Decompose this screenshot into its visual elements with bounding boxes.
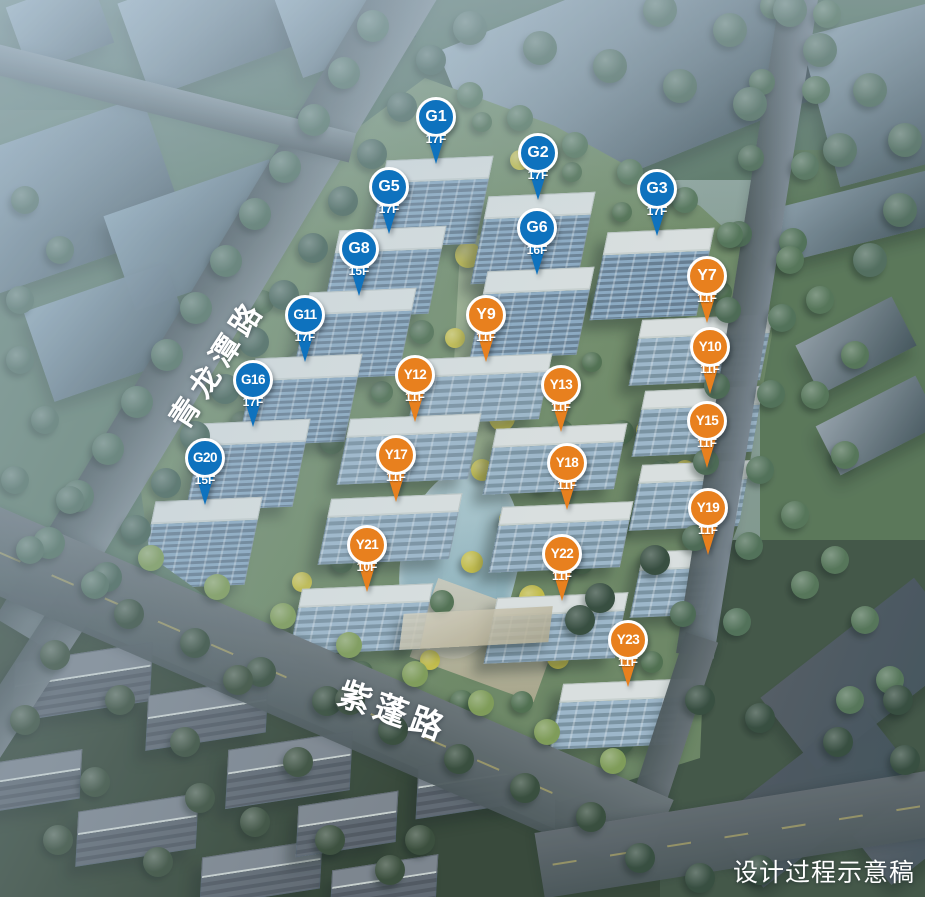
building-pin-y15[interactable]: Y1511F: [684, 401, 730, 468]
pin-building-id: G6: [526, 220, 547, 236]
pin-bubble: G11: [285, 295, 325, 335]
pin-floor-count: 11F: [373, 471, 419, 483]
building-pin-y9[interactable]: Y911F: [463, 295, 509, 362]
pin-building-id: Y7: [697, 268, 717, 284]
pin-building-id: G1: [425, 109, 446, 125]
building-pin-g5[interactable]: G517F: [366, 167, 412, 234]
aerial-site-plan: G117FG217FG317FG517FG616FG815FY711FG1117…: [0, 0, 925, 897]
building-pin-y7[interactable]: Y711F: [684, 256, 730, 323]
building-pin-y12[interactable]: Y1211F: [392, 355, 438, 422]
pin-floor-count: 10F: [344, 561, 390, 573]
pin-bubble: Y22: [542, 534, 582, 574]
building-pin-g1[interactable]: G117F: [413, 97, 459, 164]
pin-floor-count: 17F: [515, 169, 561, 181]
pin-building-id: G8: [348, 241, 369, 257]
pin-bubble: Y12: [395, 355, 435, 395]
pin-building-id: Y15: [696, 414, 719, 428]
pin-building-id: G3: [646, 181, 667, 197]
pin-bubble: Y23: [608, 620, 648, 660]
building-pin-y21[interactable]: Y2110F: [344, 525, 390, 592]
building-pin-g2[interactable]: G217F: [515, 133, 561, 200]
pin-bubble: Y18: [547, 443, 587, 483]
pin-bubble: Y19: [688, 488, 728, 528]
pin-floor-count: 17F: [282, 331, 328, 343]
building-pin-g16[interactable]: G1617F: [230, 360, 276, 427]
pin-bubble: Y10: [690, 327, 730, 367]
building-pin-y13[interactable]: Y1311F: [538, 365, 584, 432]
pin-bubble: Y7: [687, 256, 727, 296]
pin-floor-count: 11F: [463, 331, 509, 343]
pin-floor-count: 11F: [685, 524, 731, 536]
pin-bubble: G16: [233, 360, 273, 400]
pin-building-id: Y12: [404, 368, 427, 382]
pin-floor-count: 17F: [366, 203, 412, 215]
pin-floor-count: 11F: [539, 570, 585, 582]
pin-building-id: Y23: [617, 633, 640, 647]
pin-bubble: Y13: [541, 365, 581, 405]
building-pin-g20[interactable]: G2015F: [182, 438, 228, 505]
pin-floor-count: 17F: [634, 205, 680, 217]
pin-building-id: G16: [241, 373, 265, 387]
pin-building-id: Y10: [699, 340, 722, 354]
building-pin-y17[interactable]: Y1711F: [373, 435, 419, 502]
pin-building-id: Y17: [385, 448, 408, 462]
building-pin-g6[interactable]: G616F: [514, 208, 560, 275]
pin-bubble: Y15: [687, 401, 727, 441]
pin-floor-count: 11F: [684, 437, 730, 449]
building-pin-y22[interactable]: Y2211F: [539, 534, 585, 601]
pin-building-id: Y19: [697, 501, 720, 515]
pin-floor-count: 17F: [230, 396, 276, 408]
building-pin-g11[interactable]: G1117F: [282, 295, 328, 362]
pin-building-id: Y21: [356, 538, 379, 552]
pin-floor-count: 15F: [336, 265, 382, 277]
design-draft-watermark: 设计过程示意稿: [733, 853, 915, 889]
pin-floor-count: 16F: [514, 244, 560, 256]
building-pin-y18[interactable]: Y1811F: [544, 443, 590, 510]
building-pin-g8[interactable]: G815F: [336, 229, 382, 296]
pin-bubble: G5: [369, 167, 409, 207]
pin-floor-count: 11F: [538, 401, 584, 413]
pin-bubble: Y21: [347, 525, 387, 565]
pin-floor-count: 15F: [182, 474, 228, 486]
pin-building-id: G20: [193, 451, 217, 465]
pin-bubble: Y9: [466, 295, 506, 335]
building-pin-y10[interactable]: Y1011F: [687, 327, 733, 394]
pin-building-id: Y13: [550, 378, 573, 392]
pin-bubble: G2: [518, 133, 558, 173]
pin-building-id: Y9: [476, 307, 496, 323]
pin-floor-count: 11F: [687, 363, 733, 375]
pin-bubble: G1: [416, 97, 456, 137]
building-pin-y19[interactable]: Y1911F: [685, 488, 731, 555]
pin-building-id: G11: [293, 308, 316, 322]
pin-bubble: G3: [637, 169, 677, 209]
building-pins-layer: G117FG217FG317FG517FG616FG815FY711FG1117…: [0, 0, 925, 897]
pin-bubble: G6: [517, 208, 557, 248]
building-pin-y23[interactable]: Y2311F: [605, 620, 651, 687]
pin-bubble: Y17: [376, 435, 416, 475]
pin-building-id: G5: [378, 179, 399, 195]
building-pin-g3[interactable]: G317F: [634, 169, 680, 236]
pin-floor-count: 11F: [605, 656, 651, 668]
pin-building-id: G2: [527, 145, 548, 161]
pin-floor-count: 11F: [544, 479, 590, 491]
pin-floor-count: 17F: [413, 133, 459, 145]
pin-floor-count: 11F: [684, 292, 730, 304]
pin-bubble: G8: [339, 229, 379, 269]
pin-bubble: G20: [185, 438, 225, 478]
pin-floor-count: 11F: [392, 391, 438, 403]
pin-building-id: Y22: [551, 547, 574, 561]
pin-building-id: Y18: [556, 456, 579, 470]
